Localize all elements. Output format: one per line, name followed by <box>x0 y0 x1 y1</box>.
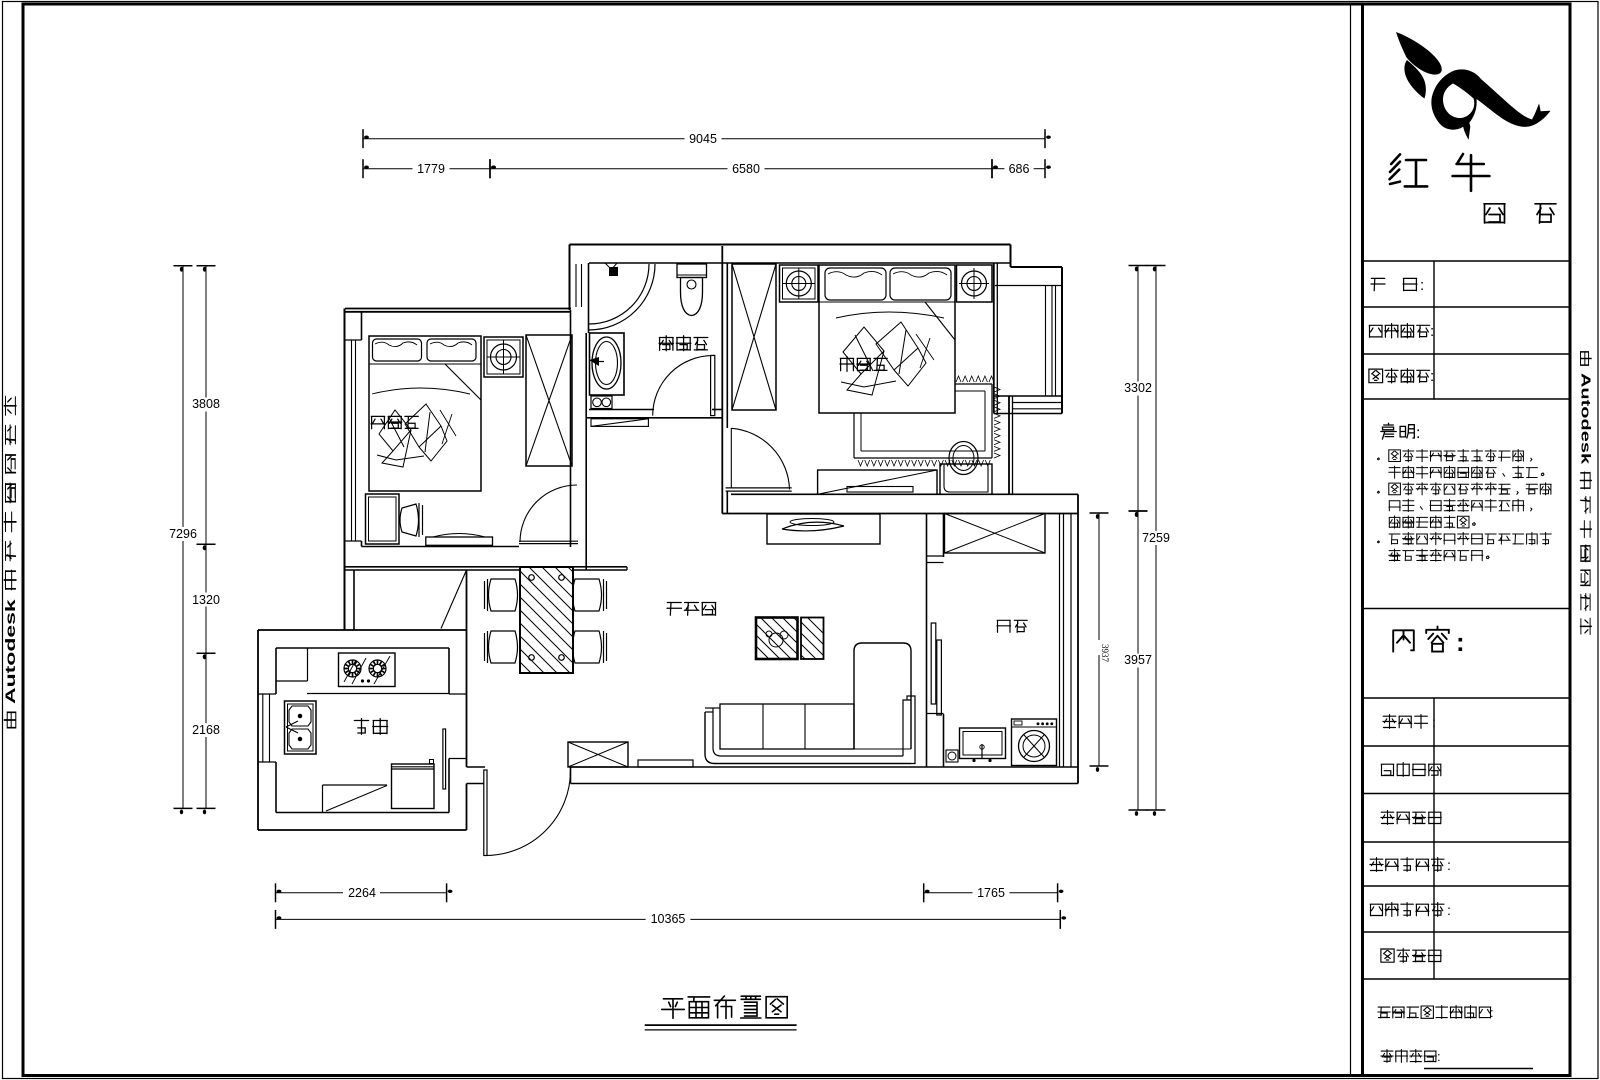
svg-text::: : <box>1447 902 1451 918</box>
svg-text:1765: 1765 <box>977 886 1005 900</box>
svg-text:9045: 9045 <box>689 132 717 146</box>
svg-text:1779: 1779 <box>417 162 445 176</box>
svg-text:1320: 1320 <box>192 593 220 607</box>
svg-text:7296: 7296 <box>169 527 197 541</box>
svg-text:3808: 3808 <box>192 397 220 411</box>
svg-text:686: 686 <box>1009 162 1030 176</box>
svg-text:Autodesk: Autodesk <box>1579 373 1594 465</box>
svg-text:3937: 3937 <box>1100 644 1110 663</box>
svg-text:3957: 3957 <box>1124 653 1152 667</box>
svg-text:2264: 2264 <box>348 886 376 900</box>
svg-text:2168: 2168 <box>192 723 220 737</box>
svg-text::: : <box>1416 425 1420 442</box>
svg-text::: : <box>1432 714 1436 730</box>
svg-text:10365: 10365 <box>651 912 686 926</box>
svg-text::: : <box>1490 1005 1494 1020</box>
svg-text::: : <box>1430 323 1434 340</box>
svg-text:6580: 6580 <box>732 162 760 176</box>
svg-text:Autodesk: Autodesk <box>3 599 18 704</box>
svg-text::: : <box>1437 1049 1441 1064</box>
svg-text::: : <box>1420 277 1424 294</box>
svg-text::: : <box>1430 368 1434 385</box>
svg-text:7259: 7259 <box>1142 531 1170 545</box>
svg-text::: : <box>1456 627 1465 657</box>
svg-text:3302: 3302 <box>1124 381 1152 395</box>
svg-text::: : <box>1447 857 1451 873</box>
